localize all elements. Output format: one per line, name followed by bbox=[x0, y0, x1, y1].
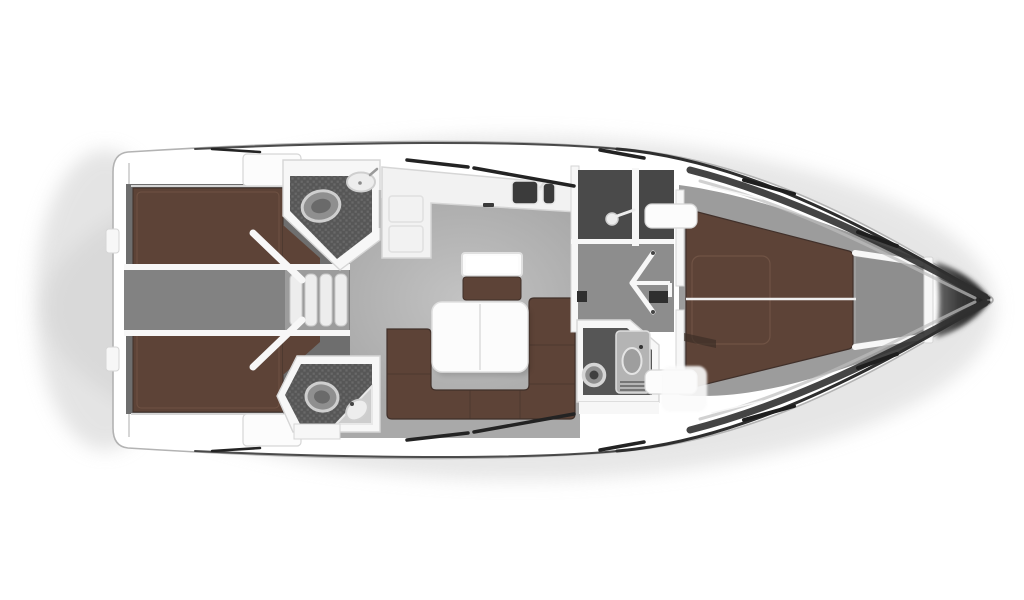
nav-seat bbox=[463, 277, 521, 300]
sink-main bbox=[512, 181, 538, 204]
transom-notch-bottom bbox=[106, 347, 119, 371]
floorplan-svg bbox=[0, 0, 1024, 600]
mid-corridor-floor bbox=[578, 244, 674, 332]
sink-secondary bbox=[543, 183, 555, 204]
nav-table-top bbox=[466, 256, 518, 273]
sink-basin bbox=[623, 348, 642, 374]
head-starboard-step bbox=[294, 424, 340, 439]
shower-floor bbox=[578, 170, 632, 244]
engine-passage-wall-top bbox=[124, 264, 350, 270]
shower-wall-right bbox=[632, 168, 639, 246]
door-threshold bbox=[649, 291, 668, 303]
faucet-icon bbox=[639, 345, 643, 349]
drain-dot bbox=[358, 181, 362, 185]
transom-notch-top bbox=[106, 229, 119, 253]
nav-station bbox=[462, 253, 522, 300]
shower-corridor-wall bbox=[571, 239, 674, 244]
forward-head-sill bbox=[579, 402, 659, 414]
washer-core bbox=[590, 371, 599, 380]
engine-passage-wall-bottom bbox=[124, 330, 350, 336]
head-starboard bbox=[277, 356, 380, 439]
step-tread bbox=[320, 274, 332, 326]
aft-berth-starboard bbox=[133, 328, 283, 412]
forward-head bbox=[577, 320, 659, 414]
forward-entry-glow bbox=[661, 366, 707, 412]
faucet-icon bbox=[350, 402, 354, 406]
salon-forward-wall bbox=[571, 166, 579, 332]
galley-handle bbox=[483, 203, 494, 207]
door-hinge-dot bbox=[651, 310, 655, 314]
galley-sink-icon bbox=[512, 181, 555, 204]
door-hinge-dot bbox=[651, 251, 655, 255]
step-tread bbox=[305, 274, 317, 326]
aft-berth-port bbox=[133, 188, 283, 272]
washer-icon bbox=[584, 365, 605, 386]
forward-bench-port bbox=[645, 204, 697, 228]
corridor-handle bbox=[577, 291, 587, 302]
yacht-floorplan-canvas bbox=[0, 0, 1024, 600]
step-tread bbox=[335, 274, 347, 326]
